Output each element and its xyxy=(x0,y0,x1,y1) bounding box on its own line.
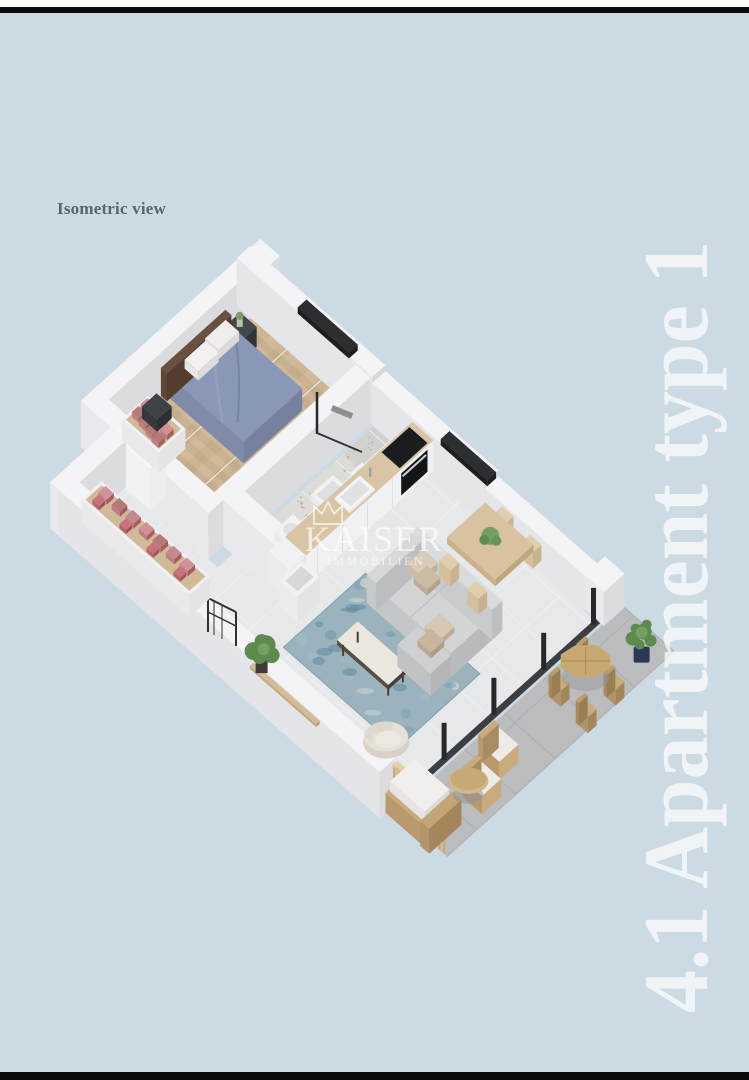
svg-text:4.1 Apartment type 1: 4.1 Apartment type 1 xyxy=(625,241,727,1013)
svg-text:KAISER: KAISER xyxy=(304,519,443,559)
svg-text:IMMOBILIEN: IMMOBILIEN xyxy=(327,554,425,568)
